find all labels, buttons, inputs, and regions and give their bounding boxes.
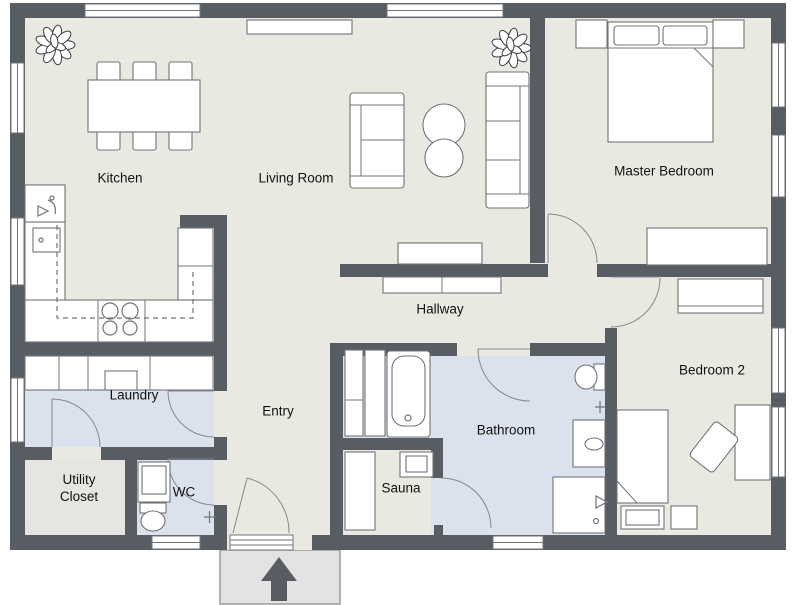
room-label-utility-closet: Utility Closet — [44, 472, 114, 506]
room-label-hallway: Hallway — [416, 302, 463, 319]
wardrobe — [678, 279, 763, 313]
room-label-kitchen: Kitchen — [97, 171, 142, 188]
room-label-master-bedroom: Master Bedroom — [614, 164, 714, 181]
room-label-living-room: Living Room — [258, 171, 333, 188]
nightstand-left — [576, 20, 607, 48]
sofa-right — [486, 72, 529, 208]
entrance-porch — [220, 550, 340, 604]
window-bedroom2-right-1 — [772, 328, 785, 393]
room-label-wc: WC — [173, 485, 196, 502]
room-label-bathroom: Bathroom — [477, 423, 536, 440]
sideboard-top — [247, 20, 352, 34]
hallway-sideboard — [398, 243, 482, 264]
double-bed — [608, 22, 713, 142]
room-label-entry: Entry — [262, 404, 294, 421]
dining-table — [88, 80, 200, 132]
bedside-table — [671, 506, 697, 529]
window-bathroom-bottom — [493, 536, 543, 549]
room-label-bedroom-2: Bedroom 2 — [679, 363, 745, 380]
window-utility-bottom — [152, 536, 200, 549]
sauna-heater — [400, 452, 433, 477]
window-bedroom2-right-2 — [772, 407, 785, 477]
desk — [735, 405, 770, 480]
kitchen-counter-bottom — [25, 300, 213, 342]
floor-plan: Kitchen Living Room Master Bedroom Hallw… — [0, 0, 800, 605]
window-master-right-2 — [772, 135, 785, 197]
bathroom-cabinets — [345, 350, 385, 436]
toilet-wc — [140, 503, 166, 531]
shower — [553, 477, 607, 533]
window-kitchen-left-2 — [11, 218, 24, 285]
room-label-sauna: Sauna — [381, 481, 420, 498]
laundry-appliances — [25, 356, 213, 390]
loveseat — [350, 93, 404, 188]
floor-plan-drawing — [0, 0, 800, 605]
kitchen-sink-cabinet — [25, 185, 65, 222]
dresser — [647, 228, 767, 265]
window-kitchen-top — [85, 4, 200, 17]
sauna-bench — [345, 452, 375, 530]
oven — [33, 228, 60, 252]
room-label-laundry: Laundry — [110, 388, 159, 405]
nightstand-right — [713, 20, 744, 48]
round-coffee-table-2 — [425, 139, 463, 177]
front-door-opening — [227, 535, 312, 550]
hallway-bench — [383, 277, 501, 293]
bathtub — [387, 351, 430, 437]
window-master-right-1 — [772, 43, 785, 107]
window-kitchen-left-1 — [11, 63, 24, 133]
window-living-top — [387, 4, 503, 17]
single-bed — [617, 410, 668, 529]
kitchen-counter-right — [178, 228, 213, 300]
window-laundry-left — [11, 378, 24, 442]
wc-cabinet — [138, 462, 170, 502]
sink-vanity — [573, 420, 605, 467]
toilet-bathroom — [575, 364, 605, 390]
